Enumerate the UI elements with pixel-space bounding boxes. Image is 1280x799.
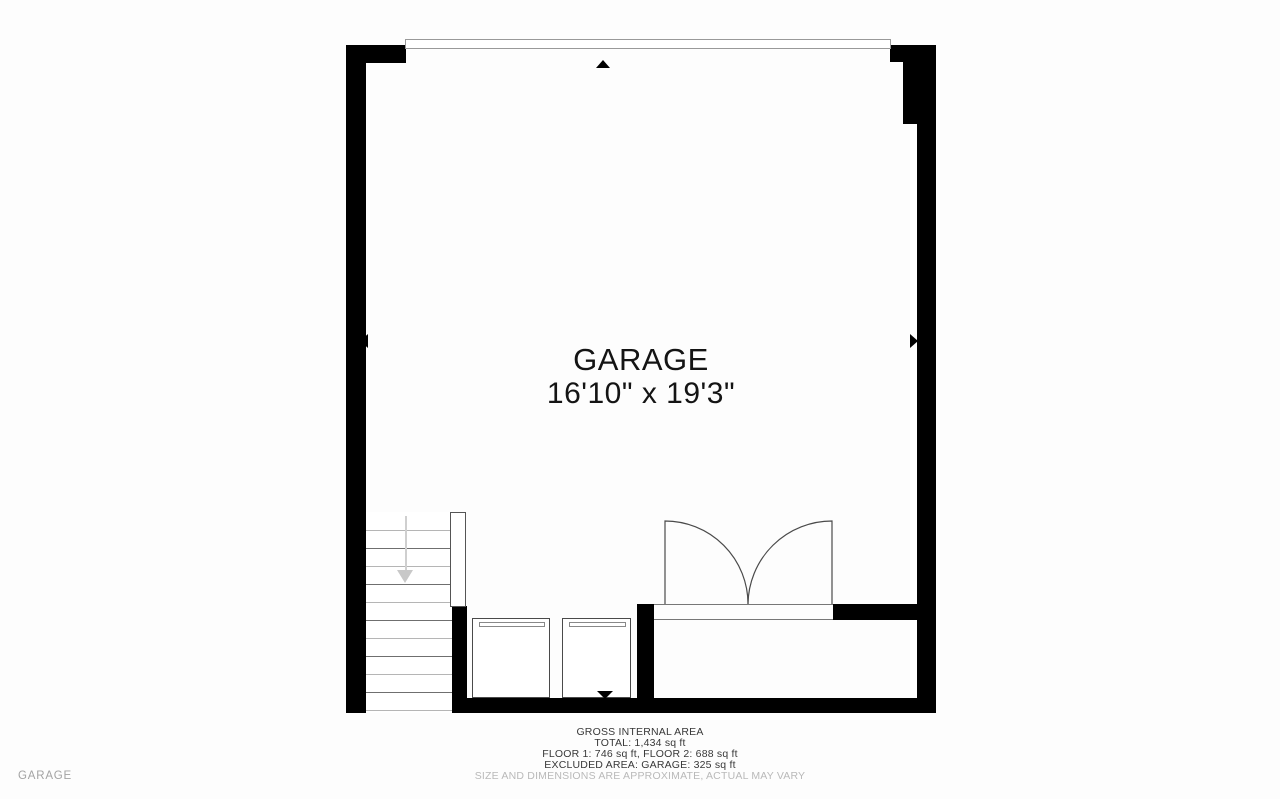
- wall-top-right-step: [903, 61, 936, 124]
- stair-tread: [366, 638, 452, 639]
- area-summary: GROSS INTERNAL AREA TOTAL: 1,434 sq ft F…: [0, 727, 1280, 782]
- wall-door-flank-right: [833, 604, 936, 620]
- double-door-threshold: [654, 604, 833, 620]
- stair-tread: [366, 710, 452, 711]
- stair-tread: [366, 602, 452, 603]
- stair-tread: [366, 692, 452, 693]
- storage-unit-right: [562, 618, 631, 698]
- wall-stair-column: [452, 606, 467, 698]
- storage-unit-detail: [569, 622, 626, 627]
- wall-right: [917, 124, 936, 713]
- room-label: GARAGE 16'10" x 19'3": [346, 343, 936, 410]
- room-dimensions: 16'10" x 19'3": [346, 377, 936, 410]
- wall-bottom: [452, 698, 936, 713]
- stairs-down-arrow-icon: [405, 516, 407, 572]
- stair-railing: [450, 512, 466, 607]
- arrow-down-icon: [597, 691, 613, 699]
- stair-tread: [366, 566, 452, 567]
- garage-roller-door: [405, 39, 891, 49]
- summary-disclaimer: SIZE AND DIMENSIONS ARE APPROXIMATE, ACT…: [0, 771, 1280, 782]
- storage-unit-detail: [479, 622, 545, 627]
- stair-tread: [366, 548, 452, 549]
- stair-tread: [366, 656, 452, 657]
- floor-tab-label: GARAGE: [18, 770, 72, 782]
- wall-top-right-corner: [890, 45, 936, 62]
- stair-tread: [366, 584, 452, 585]
- wall-door-flank-left: [637, 604, 654, 698]
- floorplan-page: GARAGE 16'10" x 19'3" GROSS INTERNAL ARE…: [0, 0, 1280, 799]
- wall-top-left-corner: [346, 45, 406, 63]
- stairs-down-arrow-icon: [397, 570, 413, 583]
- arrow-up-icon: [596, 60, 610, 68]
- storage-unit-left: [472, 618, 550, 698]
- stair-tread: [366, 674, 452, 675]
- room-name: GARAGE: [346, 343, 936, 377]
- stair-tread: [366, 530, 452, 531]
- staircase: [366, 512, 452, 713]
- stair-tread: [366, 620, 452, 621]
